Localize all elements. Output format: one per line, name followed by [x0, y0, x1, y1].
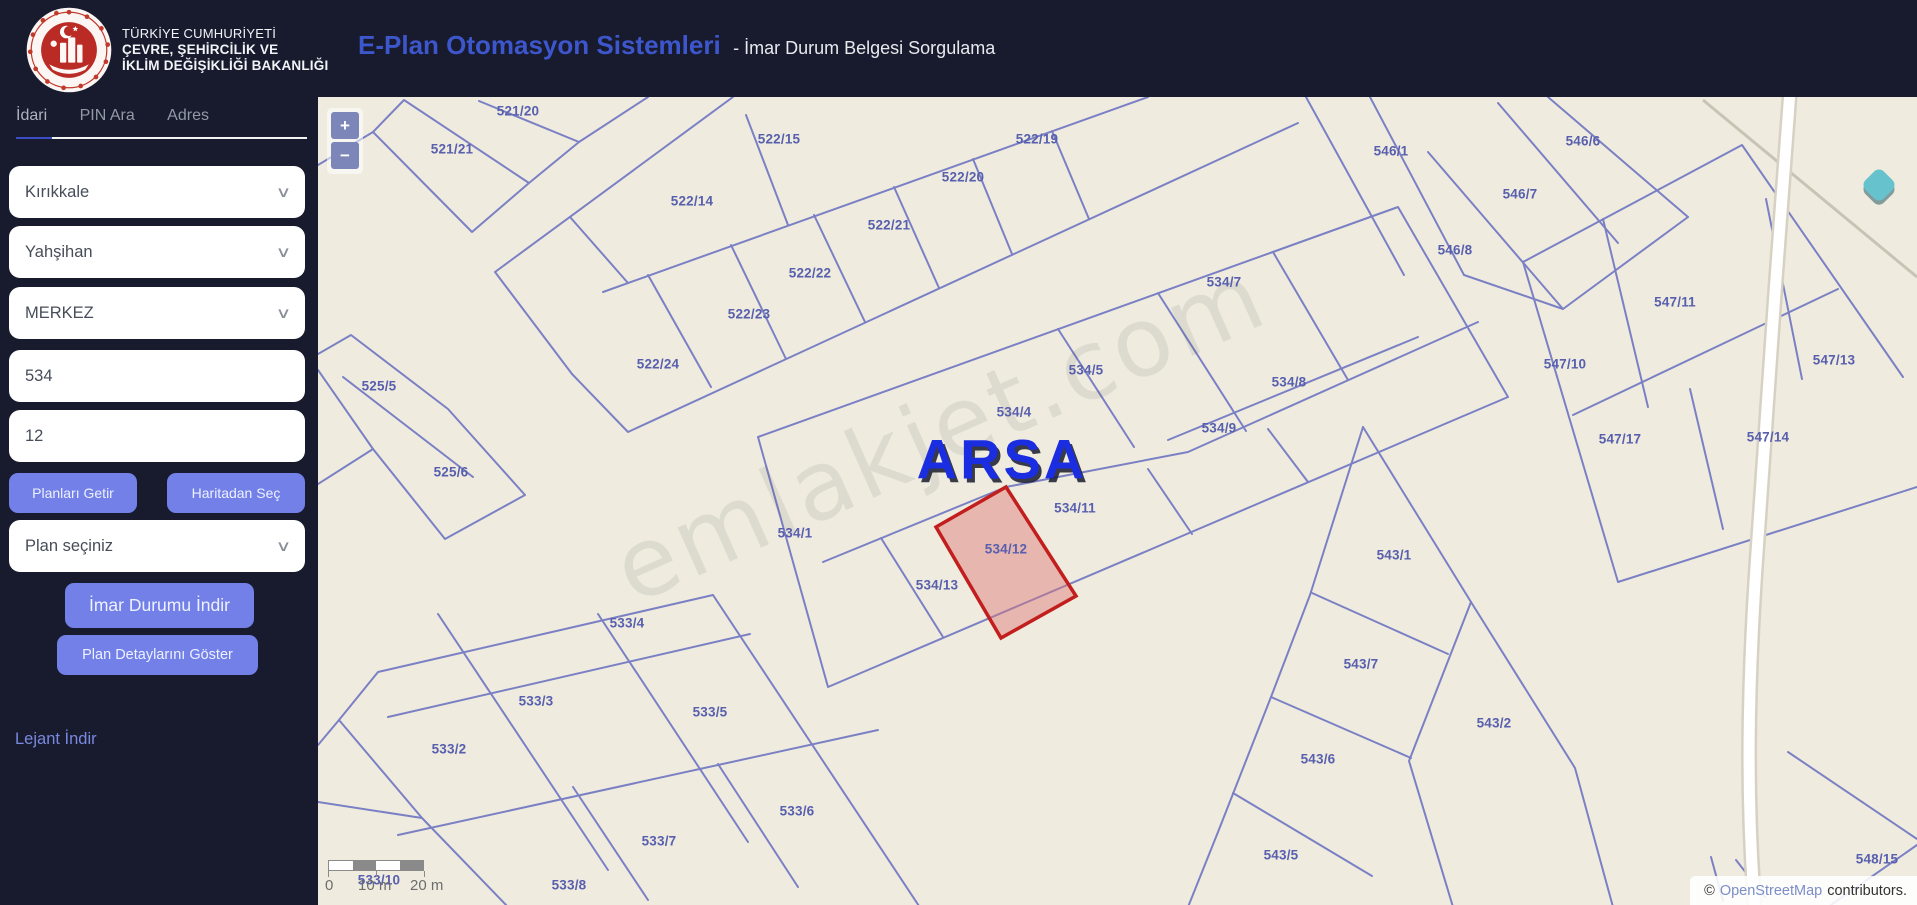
parcel-label: 533/2	[432, 742, 467, 757]
parcel-label: 534/1	[778, 526, 813, 541]
parcel-lines-layer	[318, 97, 1917, 905]
parcel-label: 533/4	[610, 616, 645, 631]
chevron-down-icon: ∨	[276, 304, 292, 322]
parcel-label: 525/5	[362, 379, 397, 394]
parcel-label: 543/2	[1477, 716, 1512, 731]
chevron-down-icon: ∨	[276, 183, 292, 201]
parcel-label: 543/7	[1344, 657, 1379, 672]
parcel-label: 547/11	[1654, 295, 1696, 310]
legend-download-link[interactable]: Lejant İndir	[15, 730, 97, 749]
attribution-suffix: contributors.	[1827, 883, 1907, 899]
tab-adres[interactable]: Adres	[167, 107, 209, 125]
ministry-line2: ÇEVRE, ŞEHİRCİLİK VE	[122, 42, 328, 58]
parcel-label: 533/6	[780, 804, 815, 819]
map-zoom-control: + −	[327, 108, 363, 174]
chevron-down-icon: ∨	[276, 537, 292, 555]
eplan-app: TÜRKİYE CUMHURİYETİ ÇEVRE, ŞEHİRCİLİK VE…	[0, 0, 1917, 905]
parcel-label: 547/17	[1599, 432, 1642, 447]
zoom-out-button[interactable]: −	[331, 142, 359, 169]
parcel-label: 534/12	[985, 542, 1028, 557]
page-title: E-Plan Otomasyon Sistemleri - İmar Durum…	[358, 30, 995, 61]
parcel-label: 534/13	[916, 578, 959, 593]
app-subtitle: - İmar Durum Belgesi Sorgulama	[733, 38, 995, 58]
ministry-name: TÜRKİYE CUMHURİYETİ ÇEVRE, ŞEHİRCİLİK VE…	[122, 26, 328, 74]
show-plan-details-button[interactable]: Plan Detaylarını Göster	[57, 635, 258, 675]
ministry-logo-icon	[24, 5, 114, 95]
parcel-label: 547/13	[1813, 353, 1856, 368]
parcel-label: 546/7	[1503, 187, 1538, 202]
scale-bar-segments	[328, 860, 424, 871]
parcel-label: 543/1	[1377, 548, 1412, 563]
parcel-label: 548/15	[1856, 852, 1899, 867]
province-select[interactable]: Kırıkkale ∨	[9, 166, 305, 218]
parcel-label: 534/5	[1069, 363, 1104, 378]
parcel-label: 547/14	[1747, 430, 1790, 445]
neighborhood-select-value: MERKEZ	[25, 304, 94, 323]
app-header: TÜRKİYE CUMHURİYETİ ÇEVRE, ŞEHİRCİLİK VE…	[0, 0, 1917, 97]
ministry-line1: TÜRKİYE CUMHURİYETİ	[122, 26, 328, 42]
parcel-label: 543/5	[1264, 848, 1299, 863]
parcel-label: 521/20	[497, 104, 540, 119]
fetch-plans-button[interactable]: Planları Getir	[9, 473, 137, 513]
app-title: E-Plan Otomasyon Sistemleri	[358, 30, 721, 60]
parcel-label: 522/14	[671, 194, 714, 209]
download-zoning-status-button[interactable]: İmar Durumu İndir	[65, 583, 254, 628]
zoom-in-button[interactable]: +	[331, 112, 359, 139]
query-sidebar: İdari PIN Ara Adres Kırıkkale ∨ Yahşihan…	[0, 97, 318, 905]
parcel-label: 533/7	[642, 834, 677, 849]
arsa-overlay-label: ARSA	[917, 427, 1088, 492]
parcel-label: 522/19	[1016, 132, 1059, 147]
province-select-value: Kırıkkale	[25, 183, 89, 202]
parcel-label: 547/10	[1544, 357, 1587, 372]
parcel-label: 533/5	[693, 705, 728, 720]
parcel-label: 546/8	[1438, 243, 1473, 258]
parcel-label: 522/15	[758, 132, 801, 147]
parcel-label: 534/8	[1272, 375, 1307, 390]
scale-label-20: 20 m	[410, 877, 443, 894]
parcel-label: 534/4	[997, 405, 1032, 420]
plan-select-placeholder: Plan seçiniz	[25, 537, 113, 556]
parcel-label: 522/21	[868, 218, 911, 233]
cadastral-map[interactable]: emlakjet.com ARSA 521/20521/21522/15522/…	[318, 97, 1917, 905]
parcel-label: 546/6	[1566, 134, 1601, 149]
parcel-label: 522/22	[789, 266, 832, 281]
parcel-label: 546/1	[1374, 144, 1409, 159]
parcel-label: 522/20	[942, 170, 985, 185]
district-select[interactable]: Yahşihan ∨	[9, 226, 305, 278]
plan-select[interactable]: Plan seçiniz ∨	[9, 520, 305, 572]
parcel-label: 522/23	[728, 307, 771, 322]
search-mode-tabs: İdari PIN Ara Adres	[16, 107, 306, 125]
chevron-down-icon: ∨	[276, 243, 292, 261]
scale-bar: 0 10 m 20 m	[328, 860, 448, 895]
district-select-value: Yahşihan	[25, 243, 93, 262]
openstreetmap-link[interactable]: OpenStreetMap	[1720, 883, 1822, 899]
map-attribution: © OpenStreetMap contributors.	[1690, 876, 1917, 905]
parcel-label: 533/8	[552, 878, 587, 893]
parcel-label: 534/11	[1054, 501, 1096, 516]
parcel-label: 543/6	[1301, 752, 1336, 767]
attribution-prefix: ©	[1704, 883, 1715, 899]
parcel-label: 534/7	[1207, 275, 1242, 290]
block-input[interactable]	[9, 350, 305, 402]
ministry-line3: İKLİM DEĞİŞİKLİĞİ BAKANLIĞI	[122, 58, 328, 74]
scale-label-0: 0	[325, 877, 333, 894]
parcel-label: 521/21	[431, 142, 474, 157]
scale-label-10: 10 m	[358, 877, 391, 894]
pick-from-map-button[interactable]: Haritadan Seç	[167, 473, 305, 513]
parcel-label: 522/24	[637, 357, 680, 372]
parcel-label: 533/3	[519, 694, 554, 709]
tab-underline	[16, 137, 307, 139]
parcel-label: 525/6	[434, 465, 469, 480]
tab-idari[interactable]: İdari	[16, 107, 47, 125]
neighborhood-select[interactable]: MERKEZ ∨	[9, 287, 305, 339]
parcel-label: 534/9	[1202, 421, 1237, 436]
parcel-input[interactable]	[9, 410, 305, 462]
tab-pin-ara[interactable]: PIN Ara	[80, 107, 135, 125]
